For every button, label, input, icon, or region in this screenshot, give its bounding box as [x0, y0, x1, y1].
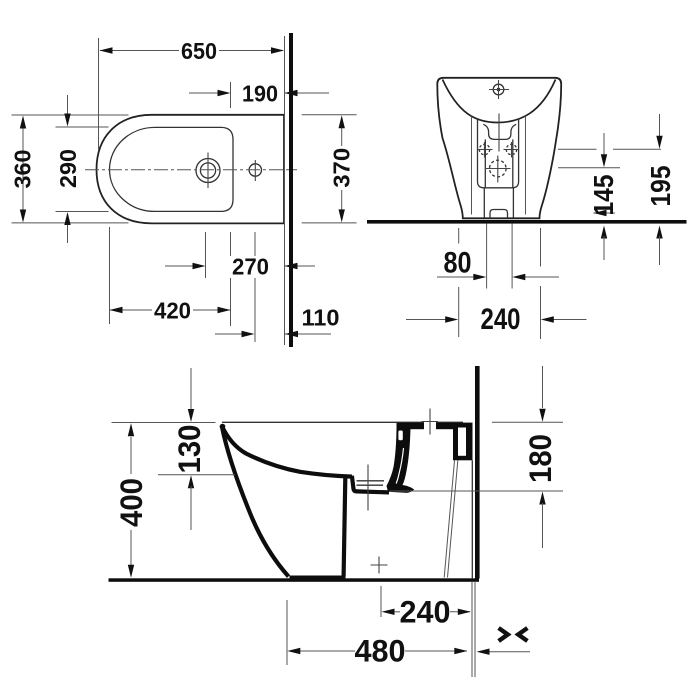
- svg-text:420: 420: [154, 297, 191, 323]
- svg-text:480: 480: [355, 633, 406, 669]
- svg-text:190: 190: [242, 80, 278, 106]
- svg-text:290: 290: [55, 149, 81, 188]
- svg-text:110: 110: [302, 304, 340, 330]
- svg-text:400: 400: [113, 478, 149, 527]
- svg-text:360: 360: [9, 150, 35, 189]
- svg-text:145: 145: [588, 175, 619, 216]
- svg-text:240: 240: [481, 303, 521, 336]
- svg-text:270: 270: [232, 253, 269, 279]
- svg-text:195: 195: [645, 166, 676, 207]
- svg-text:240: 240: [400, 593, 451, 629]
- svg-text:370: 370: [329, 148, 355, 188]
- svg-text:180: 180: [522, 434, 558, 483]
- svg-text:80: 80: [444, 246, 472, 279]
- svg-text:130: 130: [171, 425, 207, 474]
- svg-text:650: 650: [181, 38, 217, 64]
